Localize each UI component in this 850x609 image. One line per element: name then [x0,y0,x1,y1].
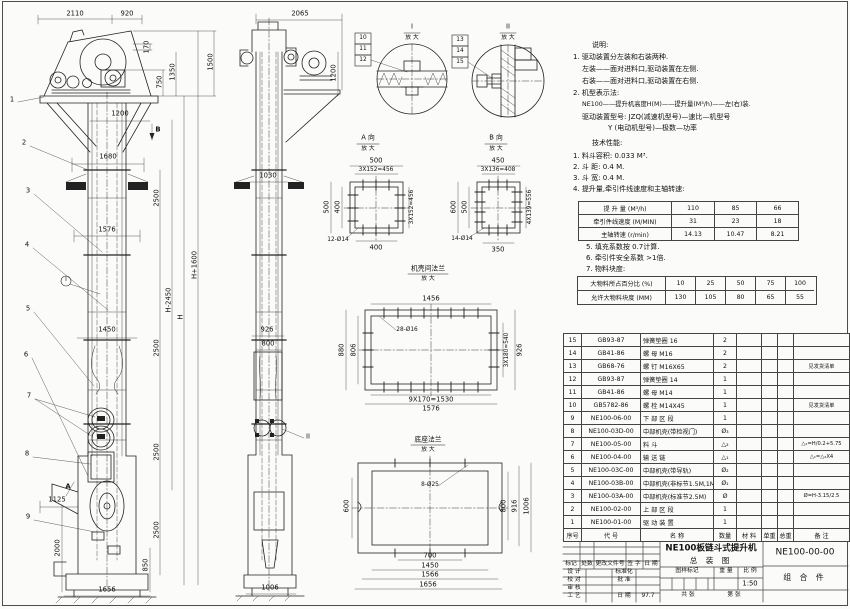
drawing-subtitle: 总 装 图 [690,557,733,565]
detail-b-500-left: 500 [462,201,469,214]
label-craft: 工 艺 [567,594,580,600]
drawing-sheet: 2110 920 170 750 1350 1500 1200 B 1680 1… [0,0,850,609]
detail-marker-i: I [65,278,67,284]
dim-2000: 2000 [55,539,62,556]
notes-heading: 说明: [592,42,608,49]
dim-1030: 1030 [259,173,276,180]
table-row: 3NE100-03A-00中部机壳(标准节2.5M)ØØ=H-3.15/2.5 [564,489,849,502]
lump-value: 50 [725,277,755,290]
dim-170: 170 [144,41,151,54]
callout-14: 14 [456,49,463,55]
lump-value: 10 [665,277,695,290]
tech-item: 3. 斗 宽: 0.4 M. [573,175,624,182]
front-view-outline [40,30,158,597]
table-row: 4NE100-03B-00中部机壳(非标节1.5M,1M)Ø₁ [564,476,849,489]
base-flange-700: 700 [424,553,437,560]
lump-value: 65 [755,290,785,304]
note-line: 左装——面对进料口,驱动装置在左侧. [582,66,698,73]
rev-col-count: 处数 [581,562,593,568]
table-row: 13GB68-76螺 钉 M16X652见发货清单 [564,359,849,372]
lump-value: 100 [785,277,814,290]
flange-holes: 28-Ø16 [396,328,417,334]
note-line: 1. 驱动装置分左装和右装两种. [573,54,668,61]
label-weight: 重 量 [719,569,732,575]
table-header-row: 序号代 号名 称数量材 料单重总重备 注 [564,528,849,541]
dim-1656-front: 1656 [98,587,115,594]
dim-750: 750 [157,76,164,89]
spec-value: 110 [671,202,714,214]
flange-1530: 9X170=1530 [409,397,454,404]
table-row: 14GB41-86螺 母 M162 [564,346,849,359]
detail-a-456-top: 3X152=456 [359,168,394,174]
lump-value: 55 [785,290,814,304]
part-type: 组 合 件 [783,574,826,582]
detail-a-400-left: 400 [335,201,342,214]
detail-i-title: I [411,24,413,31]
detail-b-title: B 向 [489,135,503,142]
dim-2110: 2110 [66,11,83,18]
label-check: 校 对 [567,578,580,584]
dim-1450: 1450 [98,327,115,334]
dim-1350: 1350 [170,63,177,80]
spec-value: 85 [714,202,756,214]
callout-1: 1 [10,97,14,104]
flange-1576: 1576 [422,406,439,413]
side-view-circles [241,50,326,530]
label-standardize: 标准化 [615,570,632,576]
dim-2065: 2065 [291,11,308,18]
lump-value: 80 [725,290,755,304]
dim-800: 800 [262,341,275,348]
note-line: NE100——提升机高度H(M)——提升量(M³/h)——左(右)装. [582,102,751,108]
dim-1576: 1576 [98,227,115,234]
rev-col-mark: 标记 [565,562,577,568]
detail-a-400-bottom: 400 [370,245,383,252]
drawing-title: NE100板链斗式提升机 [665,545,756,554]
note-line: 2. 机型表示法: [573,90,619,97]
view-marker-a: A [65,484,70,491]
dim-1200: 1200 [111,111,128,118]
lump-row-label: 大物料所占百分比 (%) [578,277,665,290]
dim-h: H [178,314,185,319]
flange-1456: 1456 [422,296,439,303]
dim-2500-d: 2500 [154,521,161,538]
dim-926: 926 [261,327,274,334]
dim-1200-side: 1200 [331,64,338,81]
dim-850: 850 [143,559,150,572]
tech-item: 6. 牵引件安全系数 >1倍. [586,255,666,262]
spec-value: 23 [714,214,756,227]
detail-a-holes: 12-Ø14 [327,238,348,244]
base-flange-916: 916 [512,500,519,513]
callout-9: 9 [26,514,30,521]
callout-2: 2 [22,140,26,147]
callout-5: 5 [26,306,30,313]
detail-a-title: A 向 [361,135,375,142]
tech-item: 5. 填充系数按 0.7计算. [586,244,660,251]
detail-b-350-bottom: 350 [492,247,505,254]
detail-b-sub: 放 大 [489,147,502,153]
detail-b-holes: 14-Ø14 [451,237,472,243]
base-flange-holes: 8-Ø25 [421,483,439,489]
table-row: 11GB41-86螺 母 M141 [564,385,849,398]
spec-row-label: 牵引件线速度 (M/MIN) [579,214,671,227]
table-row: 12GB93-87弹簧垫圈 141 [564,372,849,385]
base-flange-1656: 1656 [419,582,436,589]
base-flange-1450: 1450 [421,563,438,570]
callout-4: 4 [25,242,29,249]
dim-1006: 1006 [261,585,278,592]
flange-detail-sub: 放 大 [421,277,434,283]
base-flange-800: 800 [501,500,508,513]
dim-2500-a: 2500 [154,189,161,206]
chain-lines [97,52,276,560]
detail-a-456-right: 3X152=456 [410,190,416,225]
lump-value: 25 [695,277,725,290]
spec-value: 8.21 [756,227,798,240]
callout-15: 15 [456,60,463,66]
view-marker-b: B [155,127,160,134]
flange-880: 880 [339,344,346,357]
detail-b-556-right: 4X139=556 [528,190,534,225]
detail-b-408-top: 3X136=408 [481,168,516,174]
dim-h-2450: H-2450 [166,288,173,313]
table-row: 2NE100-02-00上 部 区 段1 [564,502,849,515]
detail-b-600-left: 600 [451,201,458,214]
dim-1680: 1680 [99,154,116,161]
table-row: 9NE100-06-00下 部 区 段1 [564,411,849,424]
tech-item: 1. 料斗容积: 0.033 M³. [573,153,648,160]
note-line: 驱动装置型号: JZQ(减速机型号)—速比—机型号 [582,114,730,121]
table-row: 8NE100-03D-00中部机壳(带检视门)Ø₃ [564,424,849,437]
flange-540: 3X180=540 [505,333,511,368]
dim-1500: 1500 [208,53,215,70]
dim-920: 920 [121,11,134,18]
spec-value: 10.47 [714,227,756,240]
detail-frames [61,33,544,553]
rev-col-date: 日 期 [644,562,657,568]
detail-ii-sub: 放 大 [501,36,514,42]
rev-col-sign: 签 字 [627,562,640,568]
table-row: 5NE100-03C-00中部机壳(带导轨)Ø₂ [564,463,849,476]
label-sheets: 共 张 [681,593,694,599]
base-flange-1006: 1006 [524,497,531,514]
callout-8: 8 [25,451,29,458]
label-page: 第 张 [727,593,740,599]
capacity-speed-table: 提 升 量 (M³/h) 110 85 66 牵引件线速度 (M/MIN) 31… [578,201,799,241]
parts-list-table: 15GB93-87弹簧垫圈 162 14GB41-86螺 母 M162 13GB… [563,333,850,542]
detail-b-450-top: 450 [492,158,505,165]
rev-col-doc: 更改文件号 [596,562,625,568]
callout-11: 11 [359,47,366,53]
spec-value: 66 [756,202,798,214]
spec-value: 31 [671,214,714,227]
spec-value: 14.13 [671,227,714,240]
base-flange-600: 600 [344,500,351,513]
callout-7: 7 [27,393,31,400]
dimension-lines [18,14,531,596]
lump-size-table: 大物料所占百分比 (%) 10 25 50 75 100 允许大物料块度 (MM… [577,276,817,305]
label-date: 日 期 [617,594,630,600]
callout-13: 13 [456,38,463,44]
label-drawing-mark: 图样标记 [675,569,698,575]
detail-a-500-left: 500 [324,201,331,214]
table-row: 1NE100-01-00驱 动 装 置1 [564,515,849,528]
detail-i-sub: 放 大 [405,36,418,42]
detail-a-500-top: 500 [370,158,383,165]
value-scale: 1:50 [742,581,757,588]
note-line: 右装——面对进料口,驱动装置在右侧. [582,78,698,85]
table-row: 10GB5782-86螺 栓 M14X451见发货清单 [564,398,849,411]
detail-ii-title: II [506,24,510,31]
lump-value: 130 [665,290,695,304]
tech-item: 7. 物料块度: [586,266,625,273]
detail-marker-ii: II [306,434,310,441]
dim-h-1600: H+1600 [192,251,199,279]
label-design: 设 计 [567,570,580,576]
label-scale: 比 例 [743,569,756,575]
tech-heading: 技术性能: [592,140,622,147]
table-row: 7NE100-05-00料 斗△₂△₂=H/0.2+5.75 [564,437,849,450]
table-row: 15GB93-87弹簧垫圈 162 [564,334,849,346]
spec-row-label: 主轴转速 (r/min) [579,227,671,240]
lump-value: 105 [695,290,725,304]
table-row: 6NE100-04-00输 送 链△₁△₁=△₂X4 [564,450,849,463]
tech-item: 4. 提升量,牵引件线速度和主轴转速: [573,186,685,193]
callout-12: 12 [359,58,366,64]
value-date: 97.7 [642,594,655,600]
lump-value: 75 [755,277,785,290]
base-flange-sub: 放 大 [421,448,434,454]
flange-926: 926 [517,344,524,357]
label-audit: 审 核 [567,586,580,592]
spec-row-label: 提 升 量 (M³/h) [579,202,671,214]
detail-a-sub: 放 大 [361,147,374,153]
note-line: Y (电动机型号)—极数—功率 [608,125,697,132]
dim-1125: 1125 [48,497,65,504]
label-approve: 批 准 [617,578,630,584]
flange-806: 806 [351,344,358,357]
spec-value: 18 [756,214,798,227]
lump-row-label: 允许大物料块度 (MM) [578,290,665,304]
callout-6: 6 [24,352,28,359]
base-flange-1566: 1566 [421,572,438,579]
callout-3: 3 [26,188,30,195]
callout-10: 10 [359,36,366,42]
bolt-hole-ticks [348,180,522,557]
dim-2500-b: 2500 [154,339,161,356]
side-view-outline [236,22,340,596]
base-flange-title: 底座法兰 [414,437,441,444]
tech-item: 2. 斗 距: 0.4 M. [573,164,624,171]
dim-2500-c: 2500 [154,443,161,460]
flange-detail-title: 机壳间法兰 [411,266,445,273]
drawing-number: NE100-00-00 [776,549,835,558]
